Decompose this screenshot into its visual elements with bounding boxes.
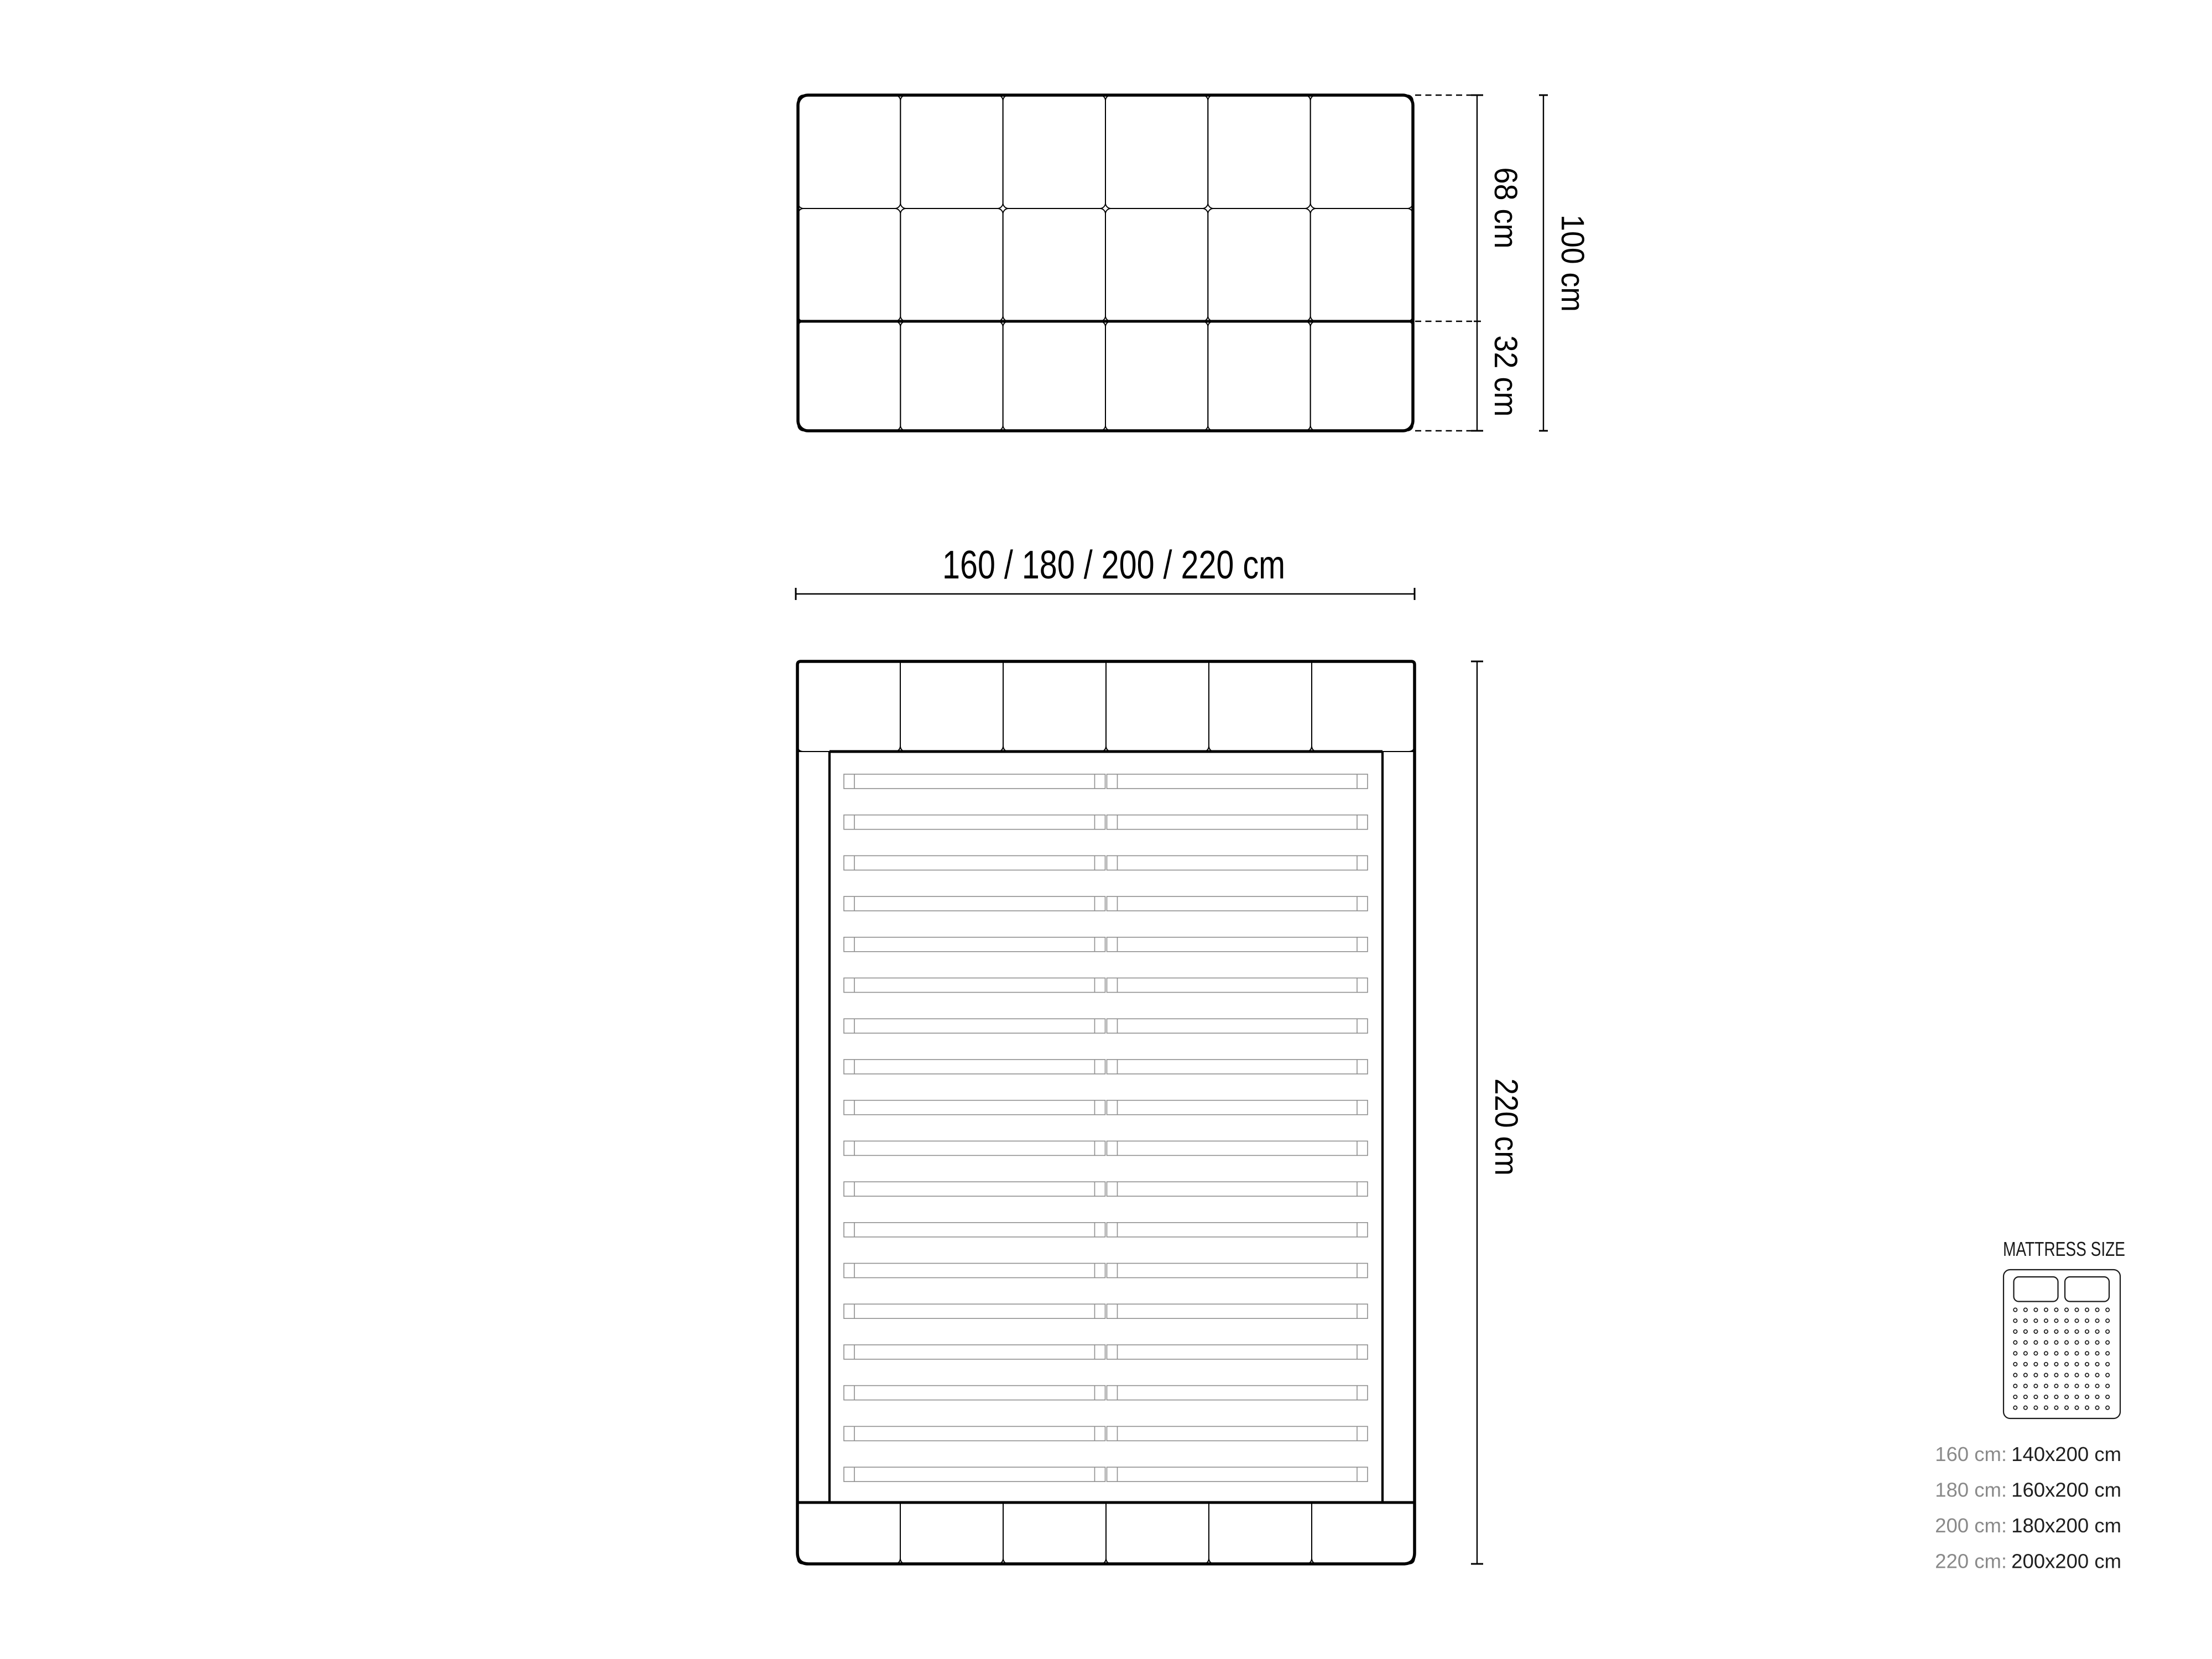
svg-text:200x200 cm: 200x200 cm [2011, 1550, 2121, 1573]
svg-text:140x200 cm: 140x200 cm [2011, 1443, 2121, 1465]
svg-text:MATTRESS SIZE: MATTRESS SIZE [2003, 1238, 2125, 1260]
svg-text:68 cm: 68 cm [1488, 168, 1524, 249]
svg-text:160 cm:: 160 cm: [1935, 1443, 2007, 1465]
svg-text:180x200 cm: 180x200 cm [2011, 1514, 2121, 1537]
svg-text:160 / 180 / 200 / 220 cm: 160 / 180 / 200 / 220 cm [942, 543, 1285, 587]
svg-text:220 cm:: 220 cm: [1935, 1550, 2007, 1573]
svg-text:32 cm: 32 cm [1488, 336, 1524, 417]
svg-text:200 cm:: 200 cm: [1935, 1514, 2007, 1537]
svg-text:220 cm: 220 cm [1488, 1078, 1524, 1176]
svg-text:180 cm:: 180 cm: [1935, 1479, 2007, 1501]
svg-text:160x200 cm: 160x200 cm [2011, 1479, 2121, 1501]
svg-text:100 cm: 100 cm [1554, 215, 1590, 312]
